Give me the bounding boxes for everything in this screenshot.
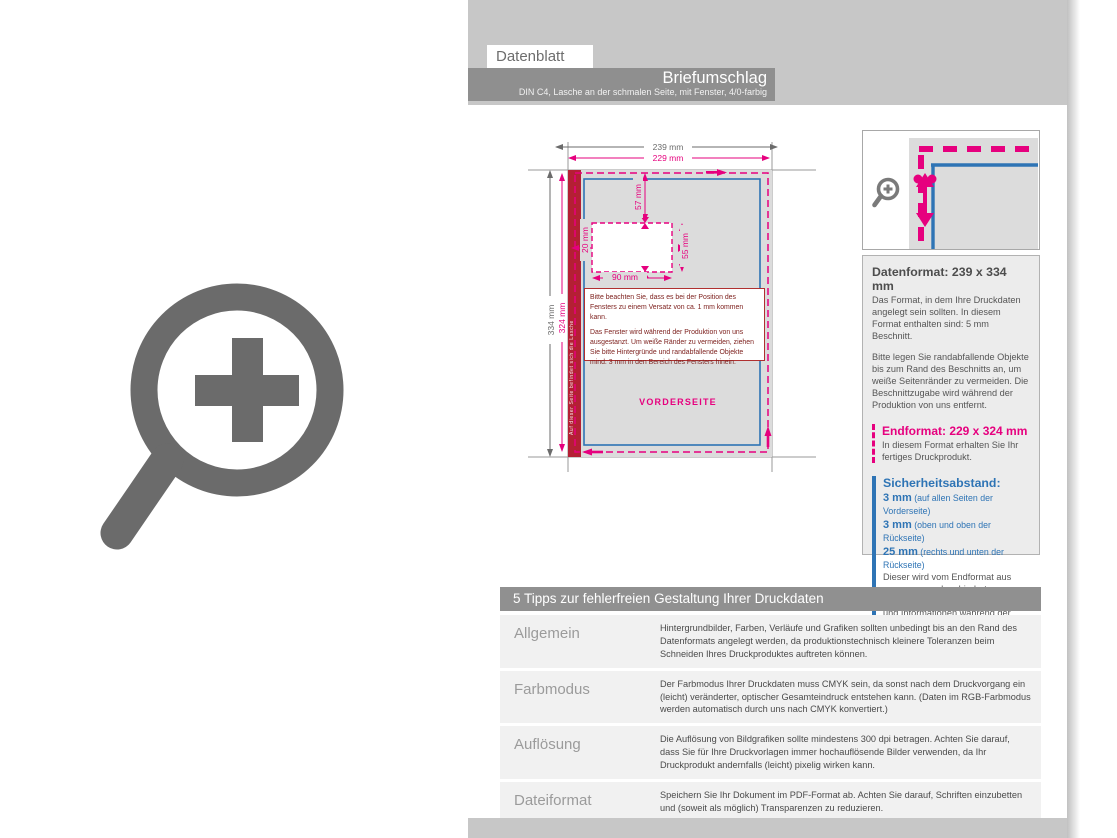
page-subtitle: DIN C4, Lasche an der schmalen Seite, mi… — [468, 87, 767, 98]
dim-inner-width: 229 mm — [644, 153, 692, 163]
tip-row-aufloesung: Auflösung Die Auflösung von Bildgrafiken… — [500, 726, 1041, 779]
window-warning-box: Bitte beachten Sie, dass es bei der Posi… — [584, 288, 765, 361]
dim-inner-height: 324 mm — [557, 294, 567, 342]
dim-window-height: 55 mm — [680, 225, 690, 267]
datenformat-para2: Bitte legen Sie randabfallende Objekte b… — [872, 352, 1031, 412]
tip-body: Der Farbmodus Ihrer Druckdaten muss CMYK… — [660, 671, 1041, 724]
tip-label: Farbmodus — [500, 671, 660, 724]
tip-label: Dateiformat — [500, 782, 660, 822]
tip-row-farbmodus: Farbmodus Der Farbmodus Ihrer Druckdaten… — [500, 671, 1041, 724]
datenblatt-label: Datenblatt — [496, 48, 564, 65]
safety-line: 3 mm (oben und oben der Rückseite) — [883, 519, 1031, 544]
safety-line: 3 mm (auf allen Seiten der Vorderseite) — [883, 492, 1031, 517]
tip-row-dateiformat: Dateiformat Speichern Sie Ihr Dokument i… — [500, 782, 1041, 822]
endformat-section: Endformat: 229 x 324 mm In diesem Format… — [872, 424, 1031, 464]
endformat-body: In diesem Format erhalten Sie Ihr fertig… — [882, 440, 1031, 464]
flap-note: Auf dieser Seite befindet sich die Lasch… — [569, 190, 581, 435]
zoom-detail-graphic — [863, 131, 1039, 249]
address-window — [592, 223, 672, 272]
page-title: Briefumschlag — [468, 70, 767, 87]
footer-band — [468, 818, 1067, 838]
tips-table: Allgemein Hintergrundbilder, Farben, Ver… — [500, 615, 1041, 838]
title-bar: Briefumschlag DIN C4, Lasche an der schm… — [468, 68, 775, 101]
tips-header: 5 Tipps zur fehlerfreien Gestaltung Ihre… — [500, 587, 1041, 611]
warning-para1: Bitte beachten Sie, dass es bei der Posi… — [590, 293, 759, 322]
endformat-title: Endformat: 229 x 324 mm — [882, 424, 1031, 438]
front-side-label: VORDERSEITE — [618, 397, 738, 407]
tip-label: Allgemein — [500, 615, 660, 668]
tip-body: Die Auflösung von Bildgrafiken sollte mi… — [660, 726, 1041, 779]
datenformat-para1: Das Format, in dem Ihre Druckdaten angel… — [872, 295, 1031, 343]
datenblatt-tab: Datenblatt — [487, 45, 593, 68]
tip-row-allgemein: Allgemein Hintergrundbilder, Farben, Ver… — [500, 615, 1041, 668]
zoom-plus-icon — [95, 270, 375, 560]
zoom-detail-box — [862, 130, 1040, 250]
format-info-panel: Datenformat: 239 x 334 mm Das Format, in… — [862, 255, 1040, 555]
safety-line: 25 mm (rechts und unten der Rückseite) — [883, 546, 1031, 571]
dim-outer-height: 334 mm — [546, 296, 556, 344]
tip-body: Hintergrundbilder, Farben, Verläufe und … — [660, 615, 1041, 668]
dim-window-width: 90 mm — [603, 272, 647, 282]
safety-title: Sicherheitsabstand: — [883, 476, 1031, 490]
datenformat-title: Datenformat: 239 x 334 mm — [872, 265, 1031, 293]
dim-window-top: 57 mm — [633, 176, 643, 218]
tip-label: Auflösung — [500, 726, 660, 779]
page-edge-shadow — [1067, 0, 1080, 838]
zoom-plus-icon-small — [875, 180, 898, 206]
warning-para2: Das Fenster wird während der Produktion … — [590, 328, 759, 367]
dim-window-left: 20 mm — [580, 219, 590, 261]
datenformat-section: Datenformat: 239 x 334 mm Das Format, in… — [872, 265, 1031, 412]
datasheet-page: Datenblatt Briefumschlag DIN C4, Lasche … — [0, 0, 1117, 838]
tip-body: Speichern Sie Ihr Dokument im PDF-Format… — [660, 782, 1041, 822]
dim-outer-width: 239 mm — [644, 142, 692, 152]
